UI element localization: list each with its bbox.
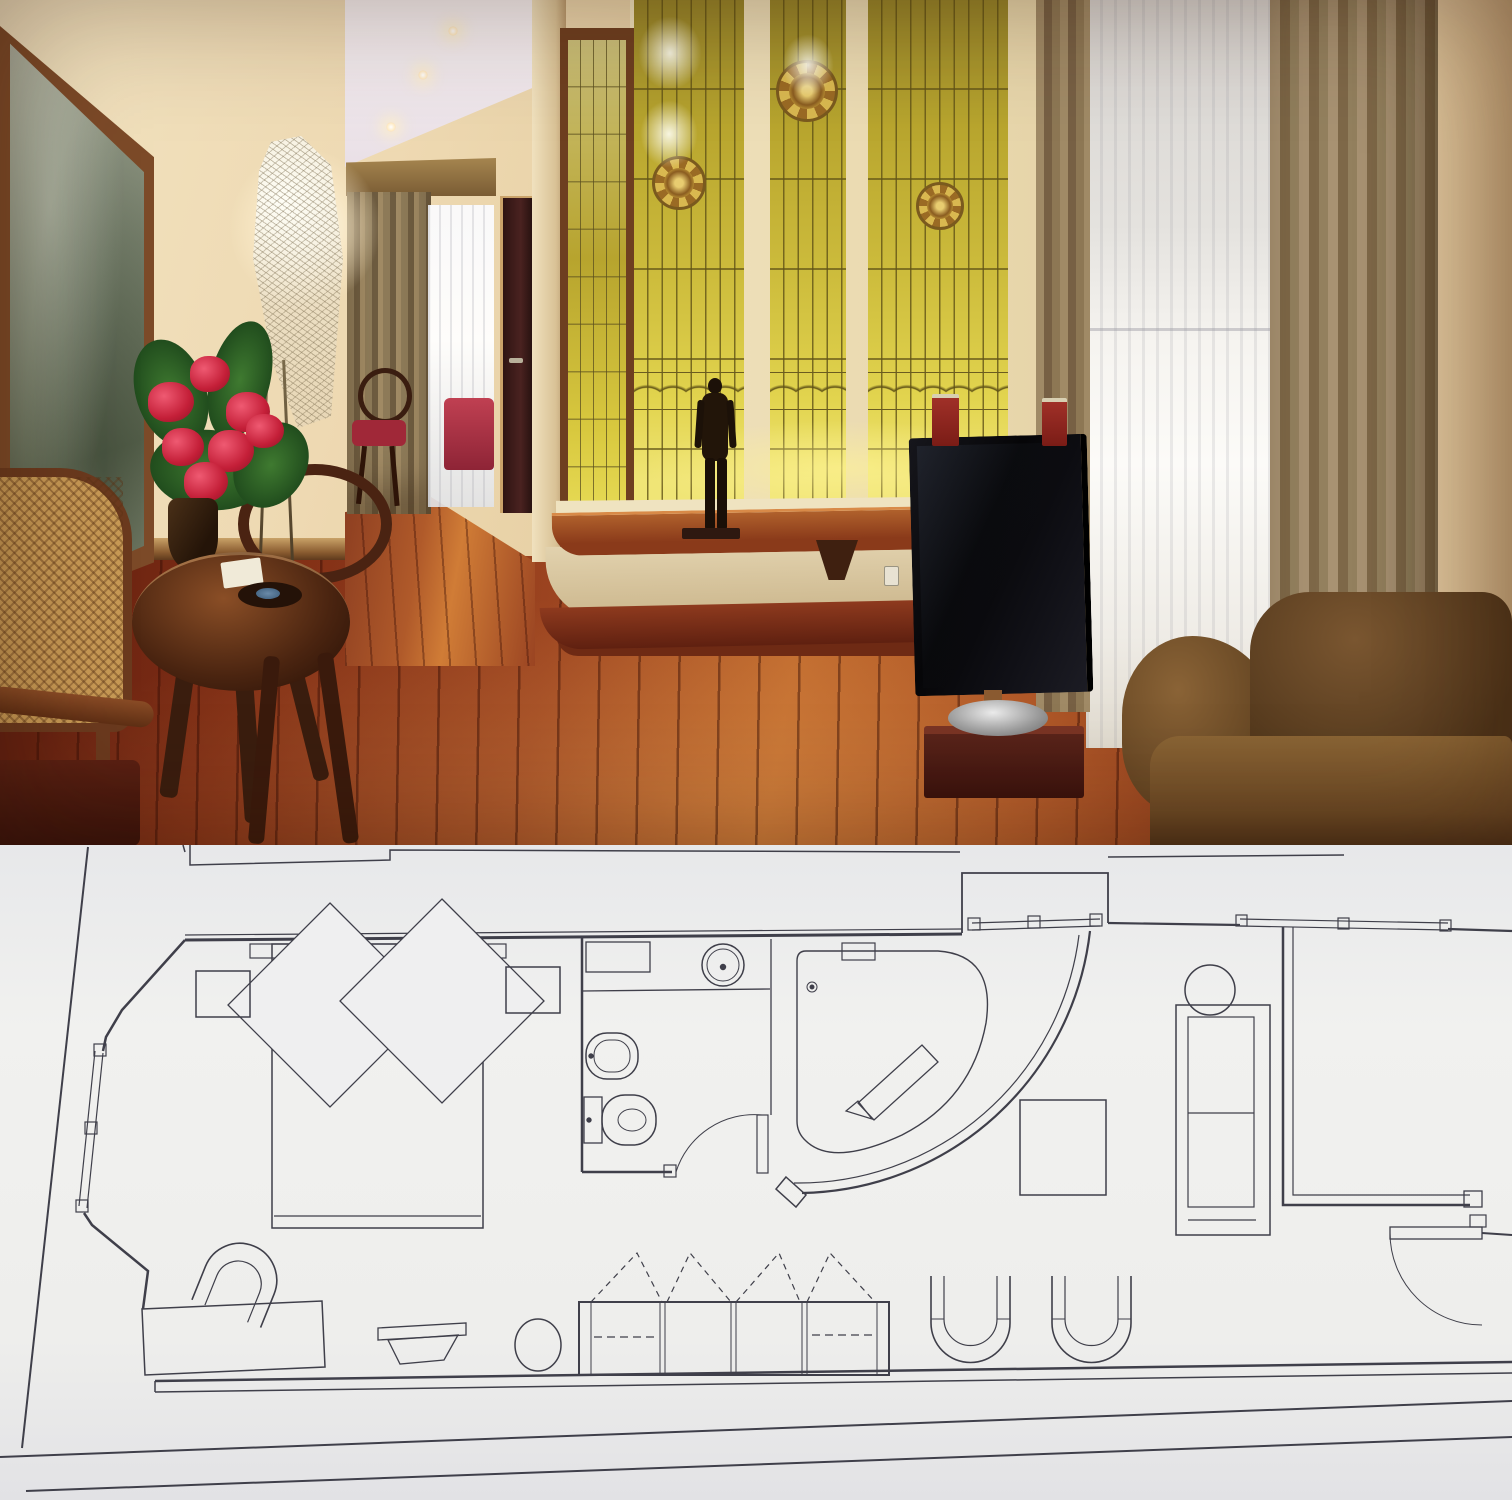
sofa-seat <box>1150 736 1512 845</box>
tub-bench <box>858 1045 938 1120</box>
downlight-icon <box>418 70 428 80</box>
u-chair-2-inner <box>1065 1276 1118 1346</box>
light-reflection <box>782 34 834 96</box>
floor-plan-svg <box>0 845 1512 1500</box>
wardrobe <box>579 1302 889 1375</box>
corridor-wall-outer <box>1283 927 1470 1205</box>
window-left-b <box>79 1051 95 1206</box>
wall-top-right-a <box>1108 923 1240 925</box>
bath-cabinet <box>586 942 650 972</box>
wall-left-upper <box>103 940 185 1051</box>
hanger-tri-1 <box>591 1253 662 1302</box>
statue-head <box>708 378 722 394</box>
tray-body <box>388 1335 458 1364</box>
pillow-right <box>340 899 544 1103</box>
bathtub <box>797 951 987 1153</box>
hanger-tri-4 <box>807 1253 875 1302</box>
statue-leg <box>705 458 715 530</box>
toilet <box>602 1095 656 1145</box>
flat-screen-tv <box>909 434 1094 697</box>
small-dish <box>238 582 302 608</box>
sheer-curtain <box>1086 0 1276 748</box>
bay-window-jamb-3 <box>1090 914 1102 926</box>
context-top-right <box>1108 855 1344 857</box>
statue-base <box>682 528 740 539</box>
toilet-tap <box>587 1118 591 1122</box>
armchair-inner <box>205 1254 268 1322</box>
tub-drain-dot <box>810 985 814 989</box>
dark-wood-door <box>500 196 535 513</box>
wardrobe-cap-left <box>579 1302 591 1375</box>
stained-glass-side-panel <box>560 28 634 550</box>
entry-wall-stub <box>1482 1233 1512 1235</box>
hanger-tri-2 <box>667 1253 731 1302</box>
bronze-statue <box>692 376 740 536</box>
bath-door-leaf <box>757 1115 768 1173</box>
statue-torso <box>702 393 728 461</box>
corridor-window-a <box>1240 919 1448 923</box>
bay-window-jamb-2 <box>1028 916 1040 928</box>
entry-door-leaf <box>1390 1227 1482 1239</box>
chair-back <box>358 368 412 424</box>
tv-base-block <box>924 726 1084 798</box>
side-table <box>1185 965 1235 1015</box>
curved-wall-outer <box>802 931 1090 1193</box>
wall-bottom-a <box>155 1362 1512 1381</box>
curved-wall-inner <box>794 935 1079 1183</box>
bay-window-a <box>972 919 1100 923</box>
sink-drain <box>721 965 726 970</box>
bidet-tap <box>589 1054 593 1058</box>
stool <box>515 1319 561 1371</box>
floor-plan <box>0 845 1512 1500</box>
chair-leg <box>389 446 399 506</box>
red-book <box>932 394 959 446</box>
page <box>0 0 1512 1500</box>
downlight-icon <box>448 26 458 36</box>
u-chair-1-inner <box>944 1276 997 1346</box>
cane-chair-seat <box>0 760 140 845</box>
corridor-wall-inner <box>1293 927 1470 1195</box>
hanger-tri-3 <box>736 1253 800 1302</box>
tv-pedestal-disc <box>948 700 1048 736</box>
suite-photo <box>0 0 1512 845</box>
vanity-counter <box>582 989 770 991</box>
tv-cabinet <box>1020 1100 1106 1195</box>
glass-pane <box>568 40 626 526</box>
bay-outline <box>962 873 1108 933</box>
wall-top-right-b <box>1448 929 1512 931</box>
statue-leg <box>717 458 727 530</box>
wardrobe-cap-right <box>877 1302 889 1375</box>
bay-window-jamb-1 <box>968 918 980 930</box>
window-left-a <box>87 1053 103 1208</box>
light-reflection <box>640 100 698 168</box>
power-outlet <box>884 566 899 586</box>
window-left-jamb-3 <box>76 1200 88 1212</box>
context-left-slant <box>22 847 88 1448</box>
page-edge-2 <box>26 1437 1512 1491</box>
context-top-left <box>190 845 960 865</box>
bath-door-swing <box>676 1115 762 1172</box>
curved-wall-cap <box>776 1177 806 1207</box>
chair-seat <box>352 420 406 446</box>
rosette-medallion <box>916 182 964 230</box>
door-handle <box>509 358 523 363</box>
entry-door-swing <box>1390 1233 1482 1325</box>
sofa-inner <box>1188 1017 1254 1207</box>
wall-left-lower <box>84 1213 148 1309</box>
red-bed-corner <box>444 398 494 470</box>
console-table <box>142 1301 325 1375</box>
context-top-tick <box>183 845 185 852</box>
bidet-inner <box>594 1040 630 1072</box>
toilet-seat <box>618 1109 646 1131</box>
light-reflection <box>638 16 702 90</box>
entry-jamb-b <box>1470 1215 1486 1227</box>
page-edge-1 <box>0 1401 1512 1457</box>
armchair <box>192 1232 288 1327</box>
red-book <box>1042 398 1067 446</box>
sofa <box>1176 1005 1270 1235</box>
